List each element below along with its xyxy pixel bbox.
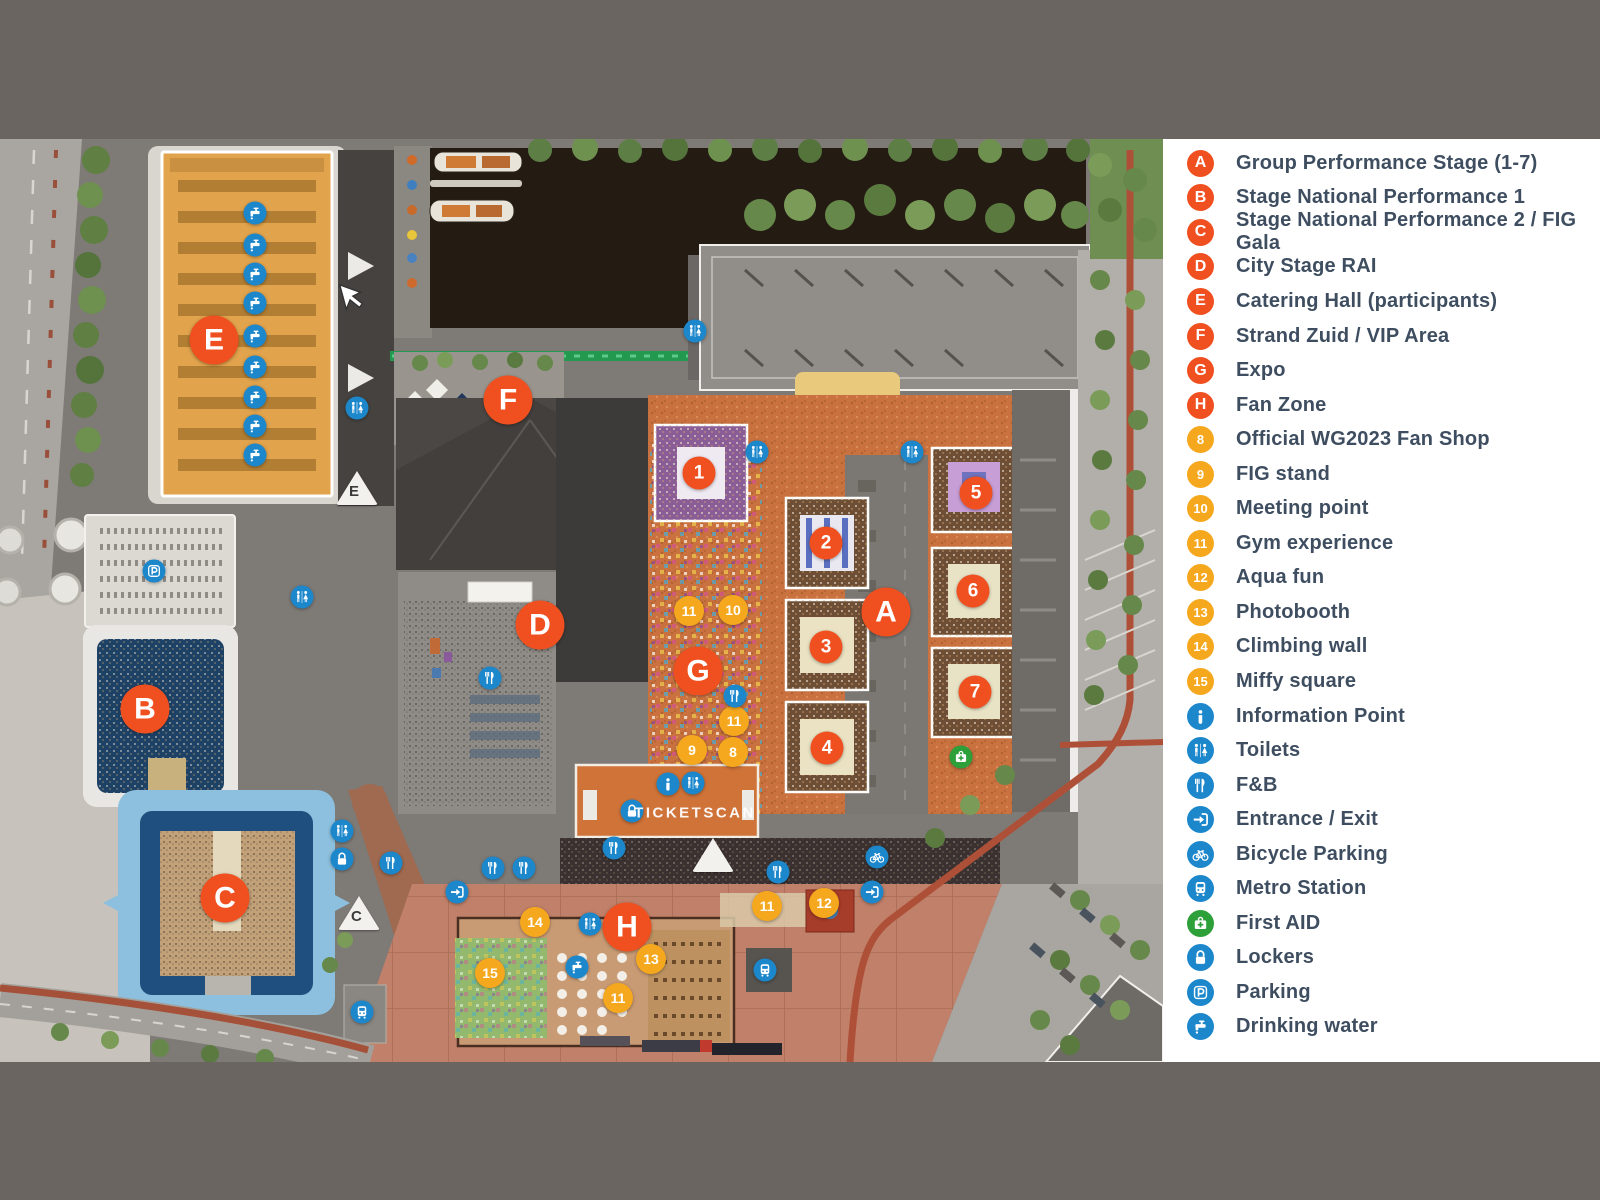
venue-map <box>0 139 1163 1062</box>
legend-item-label: FIG stand <box>1236 463 1330 486</box>
stage-b-inner <box>83 625 238 807</box>
legend-item-label: Fan Zone <box>1236 394 1327 417</box>
legend-item-info: Information Point <box>1163 699 1600 734</box>
water-icon <box>1187 1013 1214 1040</box>
legend-item-fnb: F&B <box>1163 768 1600 803</box>
legend-item-entrance: Entrance / Exit <box>1163 802 1600 837</box>
legend-item-A: AGroup Performance Stage (1-7) <box>1163 146 1600 181</box>
legend-item-9: 9FIG stand <box>1163 457 1600 492</box>
legend-item-bicycle: Bicycle Parking <box>1163 837 1600 872</box>
d-plaza <box>398 572 556 814</box>
legend-number-badge: 12 <box>1187 564 1214 591</box>
screenshot-root: EFDBCAGH123456711101198111214131511ECTIC… <box>0 0 1600 1200</box>
info-icon <box>1187 703 1214 730</box>
legend-item-metro: Metro Station <box>1163 871 1600 906</box>
bicycle-icon <box>1187 841 1214 868</box>
legend-item-label: Meeting point <box>1236 497 1369 520</box>
legend-item-11: 11Gym experience <box>1163 526 1600 561</box>
legend-number-badge: 8 <box>1187 426 1214 453</box>
legend-item-firstaid: First AID <box>1163 906 1600 941</box>
metro-icon <box>1187 875 1214 902</box>
legend-letter-badge: B <box>1187 184 1214 211</box>
legend-item-label: Strand Zuid / VIP Area <box>1236 325 1449 348</box>
legend-item-H: HFan Zone <box>1163 388 1600 423</box>
legend-number-badge: 11 <box>1187 530 1214 557</box>
legend-item-label: Group Performance Stage (1-7) <box>1236 152 1537 175</box>
lockers-icon <box>1187 944 1214 971</box>
building-e-catering <box>148 146 394 506</box>
legend-letter-badge: C <box>1187 219 1214 246</box>
legend-item-label: Official WG2023 Fan Shop <box>1236 428 1490 451</box>
legend-item-F: FStrand Zuid / VIP Area <box>1163 319 1600 354</box>
legend-item-label: Information Point <box>1236 705 1405 728</box>
toilets-icon <box>1187 737 1214 764</box>
legend-letter-badge: D <box>1187 253 1214 280</box>
legend-item-label: Stage National Performance 2 / FIG Gala <box>1236 209 1600 255</box>
legend-item-15: 15Miffy square <box>1163 664 1600 699</box>
legend-item-label: Parking <box>1236 981 1311 1004</box>
legend-item-8: 8Official WG2023 Fan Shop <box>1163 422 1600 457</box>
legend-item-label: Stage National Performance 1 <box>1236 186 1525 209</box>
legend-item-label: Toilets <box>1236 739 1300 762</box>
legend-letter-badge: H <box>1187 392 1214 419</box>
legend-item-label: Photobooth <box>1236 601 1350 624</box>
legend-number-badge: 13 <box>1187 599 1214 626</box>
legend-number-badge: 15 <box>1187 668 1214 695</box>
legend-item-10: 10Meeting point <box>1163 491 1600 526</box>
legend-item-lockers: Lockers <box>1163 941 1600 976</box>
entrance-icon <box>1187 806 1214 833</box>
legend-panel: AGroup Performance Stage (1-7)BStage Nat… <box>1163 139 1600 1062</box>
legend-item-14: 14Climbing wall <box>1163 630 1600 665</box>
parking-icon <box>1187 979 1214 1006</box>
legend-item-E: ECatering Hall (participants) <box>1163 284 1600 319</box>
firstaid-icon <box>1187 910 1214 937</box>
legend-number-badge: 9 <box>1187 461 1214 488</box>
legend-item-label: First AID <box>1236 912 1320 935</box>
fnb-icon <box>1187 772 1214 799</box>
hall-east <box>1012 390 1078 812</box>
legend-item-label: Lockers <box>1236 946 1314 969</box>
legend-item-12: 12Aqua fun <box>1163 561 1600 596</box>
legend-number-badge: 14 <box>1187 633 1214 660</box>
legend-item-label: Gym experience <box>1236 532 1393 555</box>
legend-item-label: Drinking water <box>1236 1015 1378 1038</box>
legend-item-C: CStage National Performance 2 / FIG Gala <box>1163 215 1600 250</box>
legend-letter-badge: F <box>1187 323 1214 350</box>
legend-item-parking: Parking <box>1163 975 1600 1010</box>
legend-item-G: GExpo <box>1163 353 1600 388</box>
venue-map-artwork <box>0 139 1163 1062</box>
legend-item-label: Aqua fun <box>1236 566 1324 589</box>
legend-item-label: Miffy square <box>1236 670 1356 693</box>
legend-item-label: Metro Station <box>1236 877 1366 900</box>
boats <box>430 152 522 222</box>
legend-item-label: Climbing wall <box>1236 635 1368 658</box>
legend-letter-badge: G <box>1187 357 1214 384</box>
legend-item-label: Bicycle Parking <box>1236 843 1388 866</box>
legend-item-toilets: Toilets <box>1163 733 1600 768</box>
legend-item-label: Catering Hall (participants) <box>1236 290 1497 313</box>
legend-item-label: Entrance / Exit <box>1236 808 1378 831</box>
legend-item-water: Drinking water <box>1163 1010 1600 1045</box>
legend-letter-badge: E <box>1187 288 1214 315</box>
stage-c <box>103 790 350 1030</box>
legend-item-label: F&B <box>1236 774 1278 797</box>
legend-number-badge: 10 <box>1187 495 1214 522</box>
legend-list: AGroup Performance Stage (1-7)BStage Nat… <box>1163 146 1600 1044</box>
legend-item-label: Expo <box>1236 359 1286 382</box>
legend-item-label: City Stage RAI <box>1236 255 1377 278</box>
legend-item-13: 13Photobooth <box>1163 595 1600 630</box>
legend-letter-badge: A <box>1187 150 1214 177</box>
